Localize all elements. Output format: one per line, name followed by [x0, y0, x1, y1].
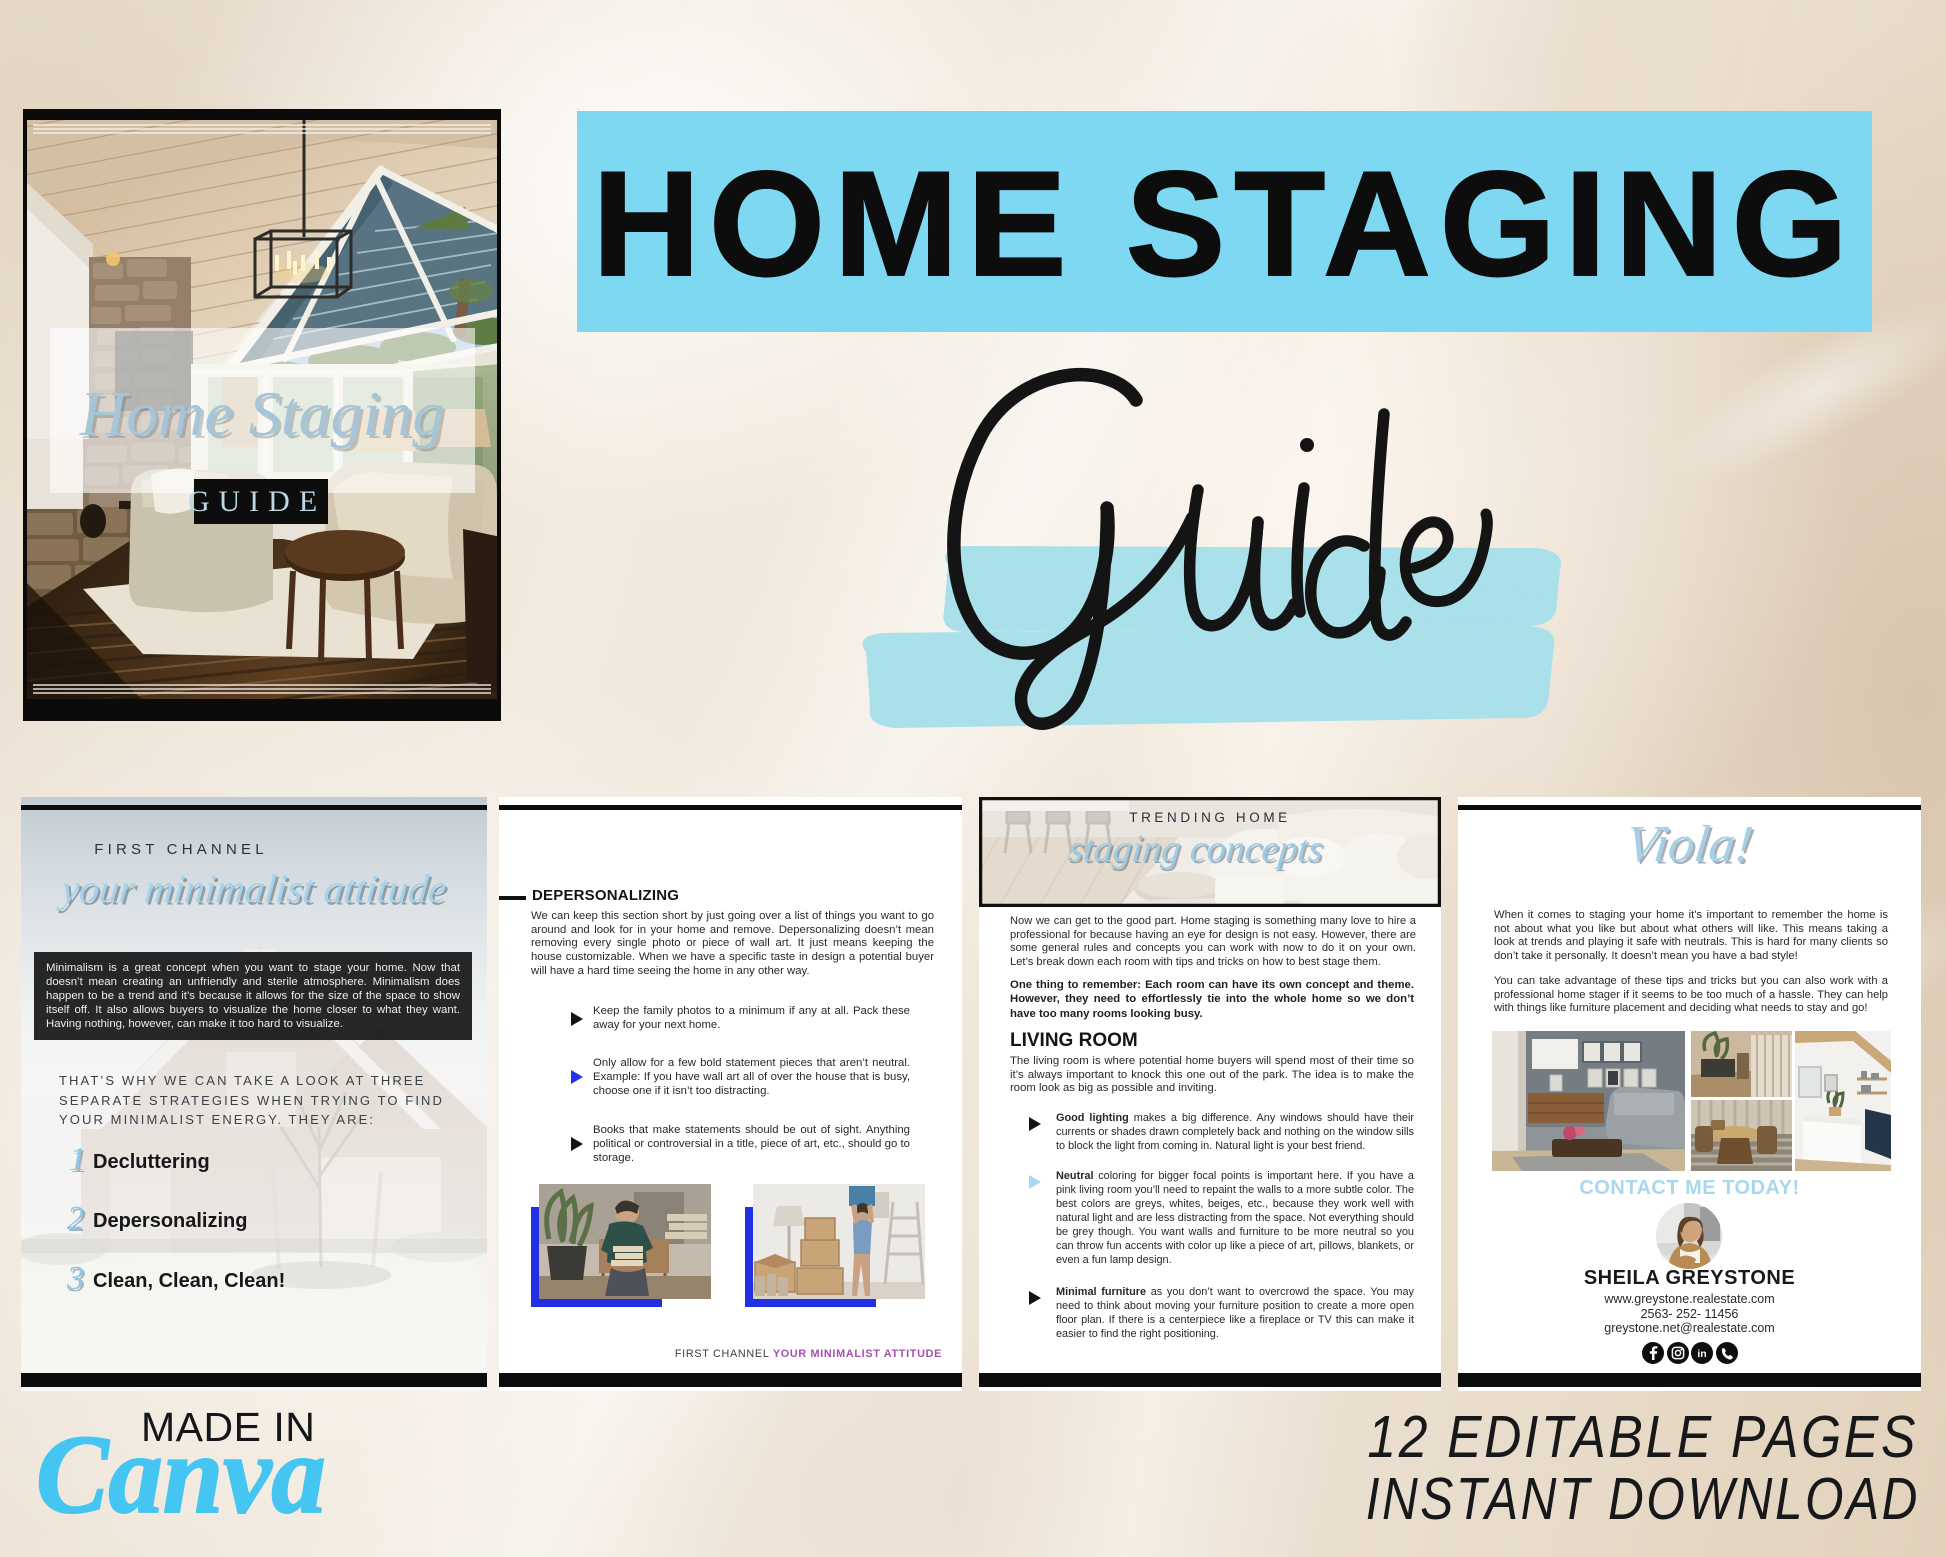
svg-text:GUIDE: GUIDE	[188, 485, 326, 518]
svg-text:Home Staging: Home Staging	[79, 378, 444, 449]
svg-text:in: in	[1697, 1348, 1706, 1360]
